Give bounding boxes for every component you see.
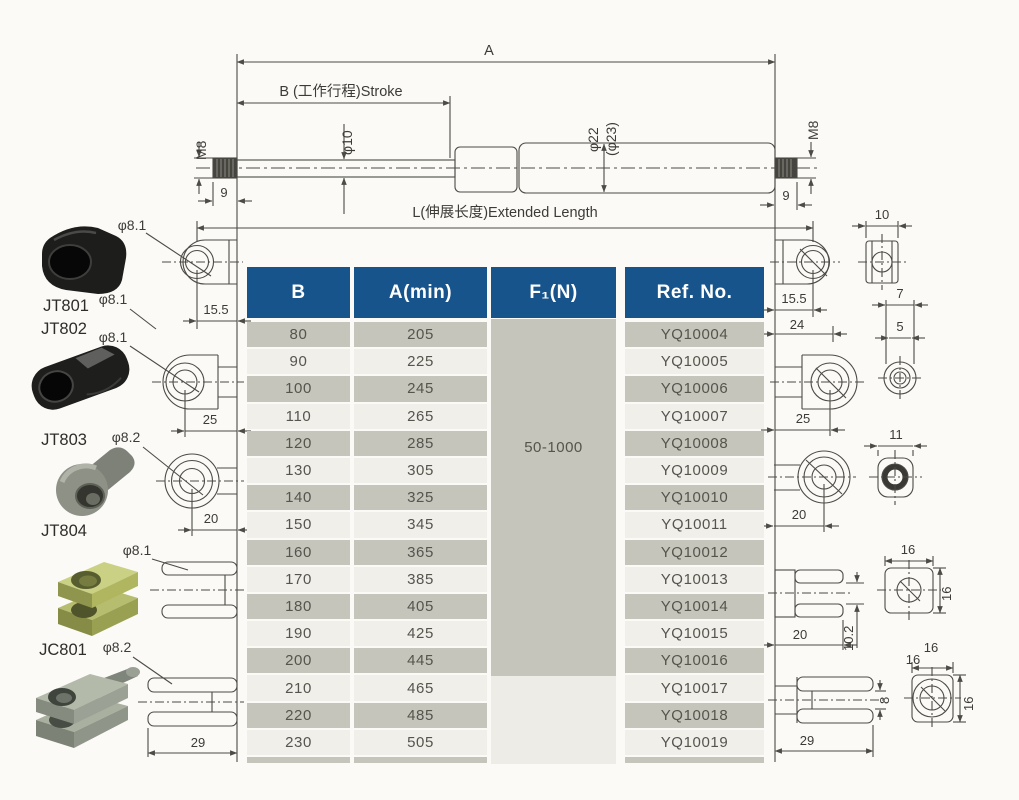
right-big-sq-h-label: 16 xyxy=(961,697,976,711)
jt803-label: JT803 xyxy=(41,431,87,449)
right-stud-flat-label: 7 xyxy=(896,286,903,301)
header-stroke: B xyxy=(247,267,350,318)
force-merged-cell-lower xyxy=(491,676,616,764)
jt804-label: JT804 xyxy=(41,522,87,540)
left-top-hole-dia-label: φ8.1 xyxy=(118,217,147,233)
right-sq-h-label: 16 xyxy=(939,587,954,601)
jt804-dia-label: φ8.1 xyxy=(123,542,152,558)
jt802-dia-label: φ8.1 xyxy=(99,329,128,345)
force-range-value: 50-1000 xyxy=(491,439,616,456)
right-big-sq-endview xyxy=(904,662,966,730)
right-stud-dia-label: 5 xyxy=(896,319,903,334)
right-eyelet2-drawing xyxy=(761,355,864,436)
right-big-clevis-len-label: 29 xyxy=(800,733,814,748)
jt804-photo xyxy=(58,562,138,636)
right-clevis-len-label: 20 xyxy=(793,627,807,642)
left-clevis-len-label: 29 xyxy=(191,735,205,750)
thread-left-label: M8 xyxy=(193,140,209,160)
right-clevis-slot-label: 10.2 xyxy=(841,626,856,651)
spec-table: B A(min) F₁(N) Ref. No. 80205YQ10004 902… xyxy=(247,267,764,765)
thread-len-left-label: 9 xyxy=(220,185,227,200)
jt801-leader xyxy=(130,309,156,329)
jt802-leader xyxy=(130,346,199,392)
spec-table-header: B A(min) F₁(N) Ref. No. xyxy=(247,267,764,318)
right-block-width-label: 10 xyxy=(875,207,889,222)
rod-dia-label: φ10 xyxy=(339,130,355,155)
right-eyelet-endview xyxy=(852,221,912,290)
right-stud-endview xyxy=(872,300,928,400)
jc801-dia-label: φ8.2 xyxy=(103,639,132,655)
right-eyelet2-len-label: 25 xyxy=(796,411,810,426)
right-sq-w-label: 16 xyxy=(901,542,915,557)
right-eyelet-width-label: 15.5 xyxy=(781,291,806,306)
tube-dia-label: φ22 xyxy=(585,127,601,152)
jt804-leader xyxy=(152,559,188,570)
right-eyelet-len-label: 24 xyxy=(790,317,804,332)
left-eyelet-drawing xyxy=(146,233,251,329)
jt801-photo xyxy=(42,226,126,294)
jt802-photo xyxy=(26,340,135,416)
dim-l-label: L(伸展长度)Extended Length xyxy=(412,204,597,221)
jt803-photo xyxy=(56,447,135,516)
right-ball-len-label: 20 xyxy=(792,507,806,522)
thread-right-label: M8 xyxy=(805,120,821,140)
right-big-clevis-drawing xyxy=(768,677,886,757)
header-min-length: A(min) xyxy=(354,267,487,318)
jt803-dia-label: φ8.2 xyxy=(112,429,141,445)
dim-a-label: A xyxy=(484,43,494,59)
right-big-sq-w2-label: 16 xyxy=(924,640,938,655)
header-force: F₁(N) xyxy=(491,267,616,318)
right-sq-endview xyxy=(877,556,946,621)
thread-len-right-label: 9 xyxy=(782,188,789,203)
right-big-slot-label: 8 xyxy=(877,697,892,704)
spec-table-body: 80205YQ10004 90225YQ10005 100245YQ10006 … xyxy=(247,322,764,763)
jt802-label: JT802 xyxy=(41,320,87,338)
right-ball-block-label: 11 xyxy=(889,427,903,442)
left-ball-len-label: 20 xyxy=(204,511,218,526)
force-merged-cell xyxy=(491,319,616,676)
dim-l xyxy=(197,221,813,242)
jc801-label: JC801 xyxy=(39,641,87,659)
left-clevis-drawing xyxy=(150,562,244,618)
right-ball-endview xyxy=(864,446,927,505)
jt801-label: JT801 xyxy=(43,297,89,315)
left-eyelet2-len-label: 25 xyxy=(203,412,217,427)
jc801-photo xyxy=(36,667,140,748)
header-ref-no: Ref. No. xyxy=(625,267,764,318)
gas-spring-datasheet: A B (工作行程)Stroke φ10 φ22 (φ23) xyxy=(0,0,1019,800)
dim-b-label: B (工作行程)Stroke xyxy=(279,83,402,100)
right-ball-drawing xyxy=(760,451,856,532)
left-eyelet-width-label: 15.5 xyxy=(203,302,228,317)
left-eyelet2-drawing xyxy=(152,355,251,437)
right-big-sq-w1-label: 16 xyxy=(906,652,920,667)
gas-spring-body xyxy=(196,143,818,193)
tube-dia-alt-label: (φ23) xyxy=(603,122,619,156)
